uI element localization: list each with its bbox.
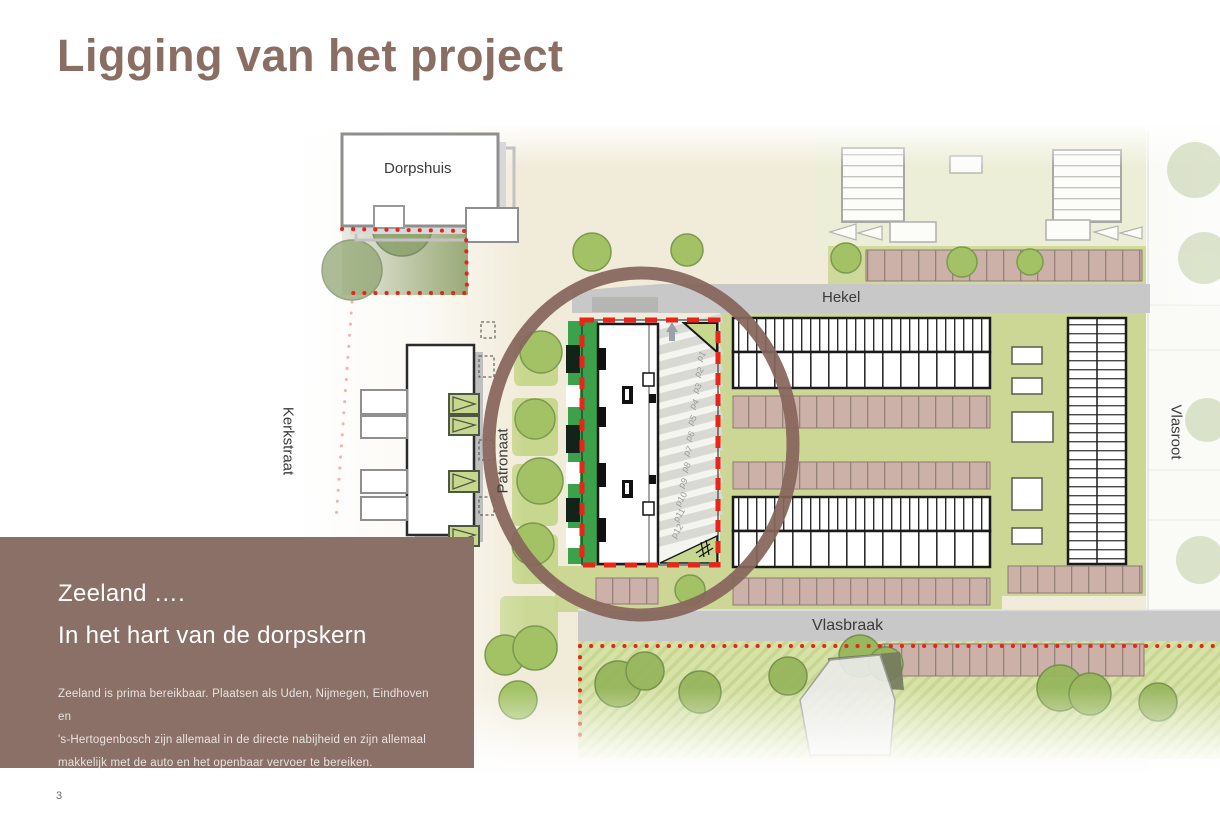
parking-spot-label: p3 [690, 381, 704, 395]
parking-spot-label: p10 [673, 490, 689, 508]
parking-spot-label: p9 [676, 476, 690, 490]
dorpshuis-label: Dorpshuis [384, 160, 452, 177]
parking-spot-label: p1 [694, 349, 708, 363]
overlay-body-text: Zeeland is prima bereikbaar. Plaatsen al… [58, 683, 444, 775]
vlasroot-street-label: Vlasroot [1168, 404, 1185, 459]
patronaat-street-label: Patronaat [495, 428, 512, 493]
parking-spot-label: p11 [671, 506, 687, 523]
parking-spot-label: p5 [685, 413, 699, 427]
vlasbraak-street-label: Vlasbraak [812, 617, 883, 635]
parking-spot-label: p12 [669, 522, 685, 540]
kerkstraat-street-label: Kerkstraat [280, 407, 297, 475]
page-number: 3 [56, 790, 62, 802]
overlay-heading-line2: In het hart van de dorpskern [58, 615, 444, 657]
info-overlay: Zeeland …. In het hart van de dorpskern … [0, 537, 474, 768]
slide: Dorpshuis Hekel Vlasbraak Kerkstraat Pat… [0, 0, 1220, 813]
parking-spot-label: p6 [683, 429, 697, 443]
parking-spot-label: p4 [687, 397, 701, 411]
hekel-street-label: Hekel [822, 289, 860, 306]
parking-spot-label: p8 [679, 460, 693, 474]
parking-spot-label: p2 [692, 365, 706, 379]
overlay-heading-line1: Zeeland …. [58, 573, 444, 615]
parking-spot-label: p7 [681, 444, 695, 458]
